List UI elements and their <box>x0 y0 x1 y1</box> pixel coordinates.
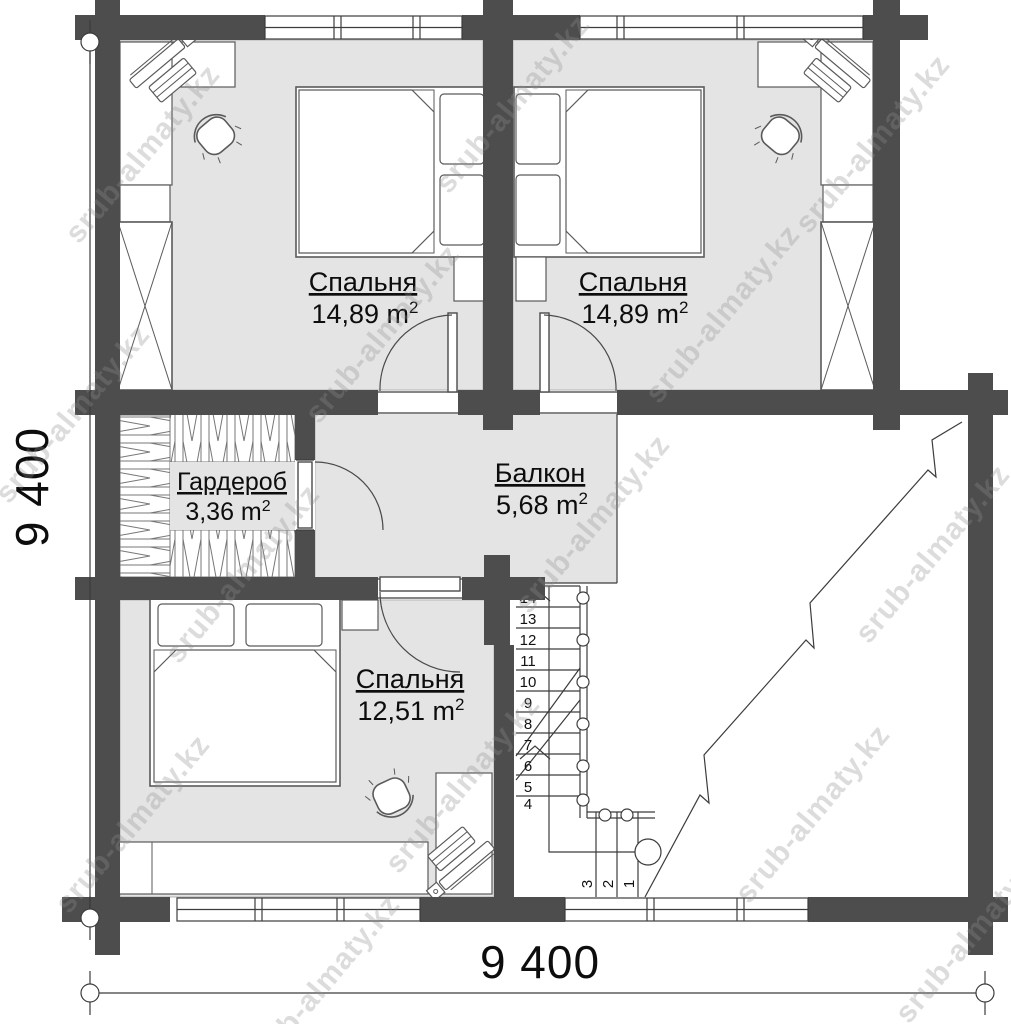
step-number: 2 <box>600 880 617 888</box>
room-area: 5,68 m2 <box>496 489 588 520</box>
floor-plan-page: 14 13 12 11 10 9 8 7 6 5 4 3 2 1 <box>0 0 1011 1024</box>
wall-stair <box>494 645 514 897</box>
window <box>565 898 808 921</box>
step-number: 12 <box>520 632 537 649</box>
pillow <box>516 175 560 245</box>
stair-newel-post <box>635 839 661 865</box>
step-number: 7 <box>524 737 532 754</box>
bed-double-icon <box>514 87 704 257</box>
room-area: 14,89 m2 <box>581 298 688 329</box>
step-number: 1 <box>621 880 638 888</box>
wall-mid-a <box>458 390 540 415</box>
room-name: Гардероб <box>177 468 287 496</box>
room-area: 12,51 m2 <box>357 695 464 726</box>
wall-log-end <box>900 15 928 40</box>
wardrobe-cabinet-icon <box>821 222 875 390</box>
wall-log-cross <box>484 555 510 645</box>
wall-right-upper <box>873 0 900 430</box>
step-number: 10 <box>520 674 537 691</box>
wall-bottom <box>420 897 565 922</box>
window <box>580 16 863 39</box>
room-name: Спальня <box>579 267 688 297</box>
room-area: 3,36 m2 <box>185 498 270 526</box>
step-number: 4 <box>524 796 532 813</box>
dresser <box>118 842 428 894</box>
dimension-value: 9 400 <box>480 936 600 988</box>
wall-wardrobe <box>295 530 315 583</box>
nightstand <box>342 600 378 630</box>
floor-plan-drawing: 14 13 12 11 10 9 8 7 6 5 4 3 2 1 <box>0 0 1011 1024</box>
wardrobe-shelf-top <box>170 413 295 462</box>
room-name: Балкон <box>495 458 586 488</box>
wall-top <box>75 15 265 40</box>
step-number: 5 <box>524 779 532 796</box>
window <box>265 16 462 39</box>
step-number: 11 <box>520 653 536 670</box>
pillow <box>246 604 322 646</box>
wardrobe-shelf-left <box>120 415 170 577</box>
wall-left <box>95 0 120 955</box>
room-name: Спальня <box>356 664 465 694</box>
step-number: 6 <box>524 758 532 775</box>
wall-center <box>483 0 513 430</box>
step-number: 3 <box>579 880 596 888</box>
nightstand <box>516 257 546 301</box>
